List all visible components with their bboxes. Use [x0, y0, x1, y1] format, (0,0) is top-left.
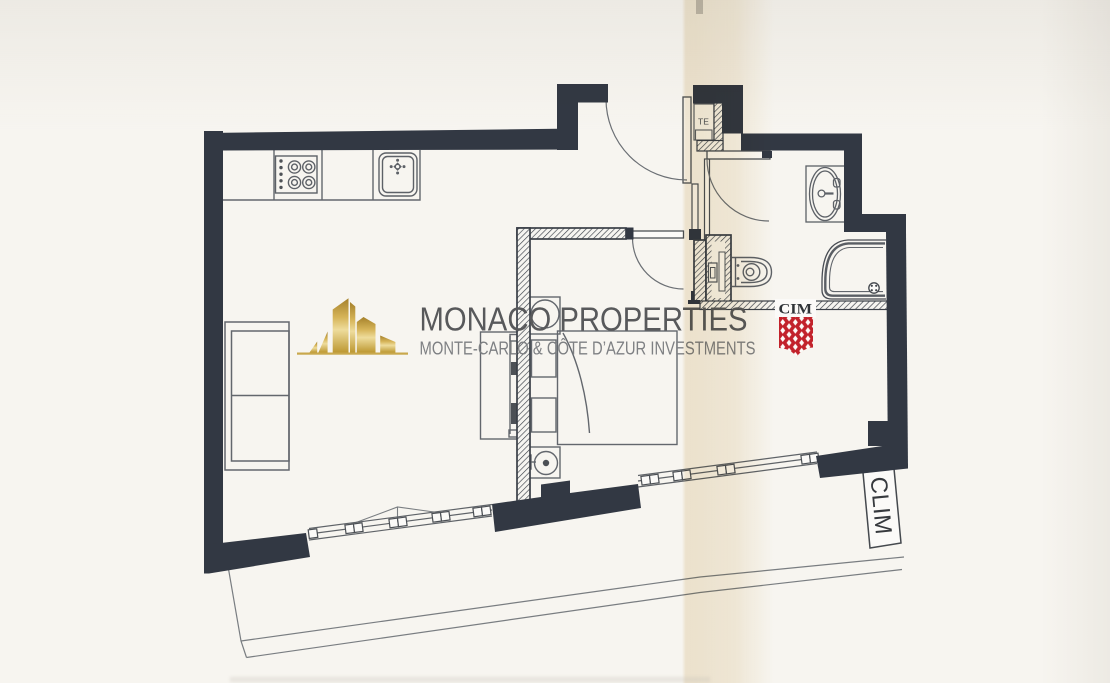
- svg-text:TE: TE: [698, 117, 709, 127]
- svg-text:MONACO PROPERTIES: MONACO PROPERTIES: [420, 302, 748, 339]
- svg-text:CLIM: CLIM: [866, 475, 897, 535]
- svg-text:CIM: CIM: [779, 302, 813, 318]
- svg-text:MONTE-CARLO & CÔTE D’AZUR INVE: MONTE-CARLO & CÔTE D’AZUR INVESTMENTS: [420, 338, 756, 359]
